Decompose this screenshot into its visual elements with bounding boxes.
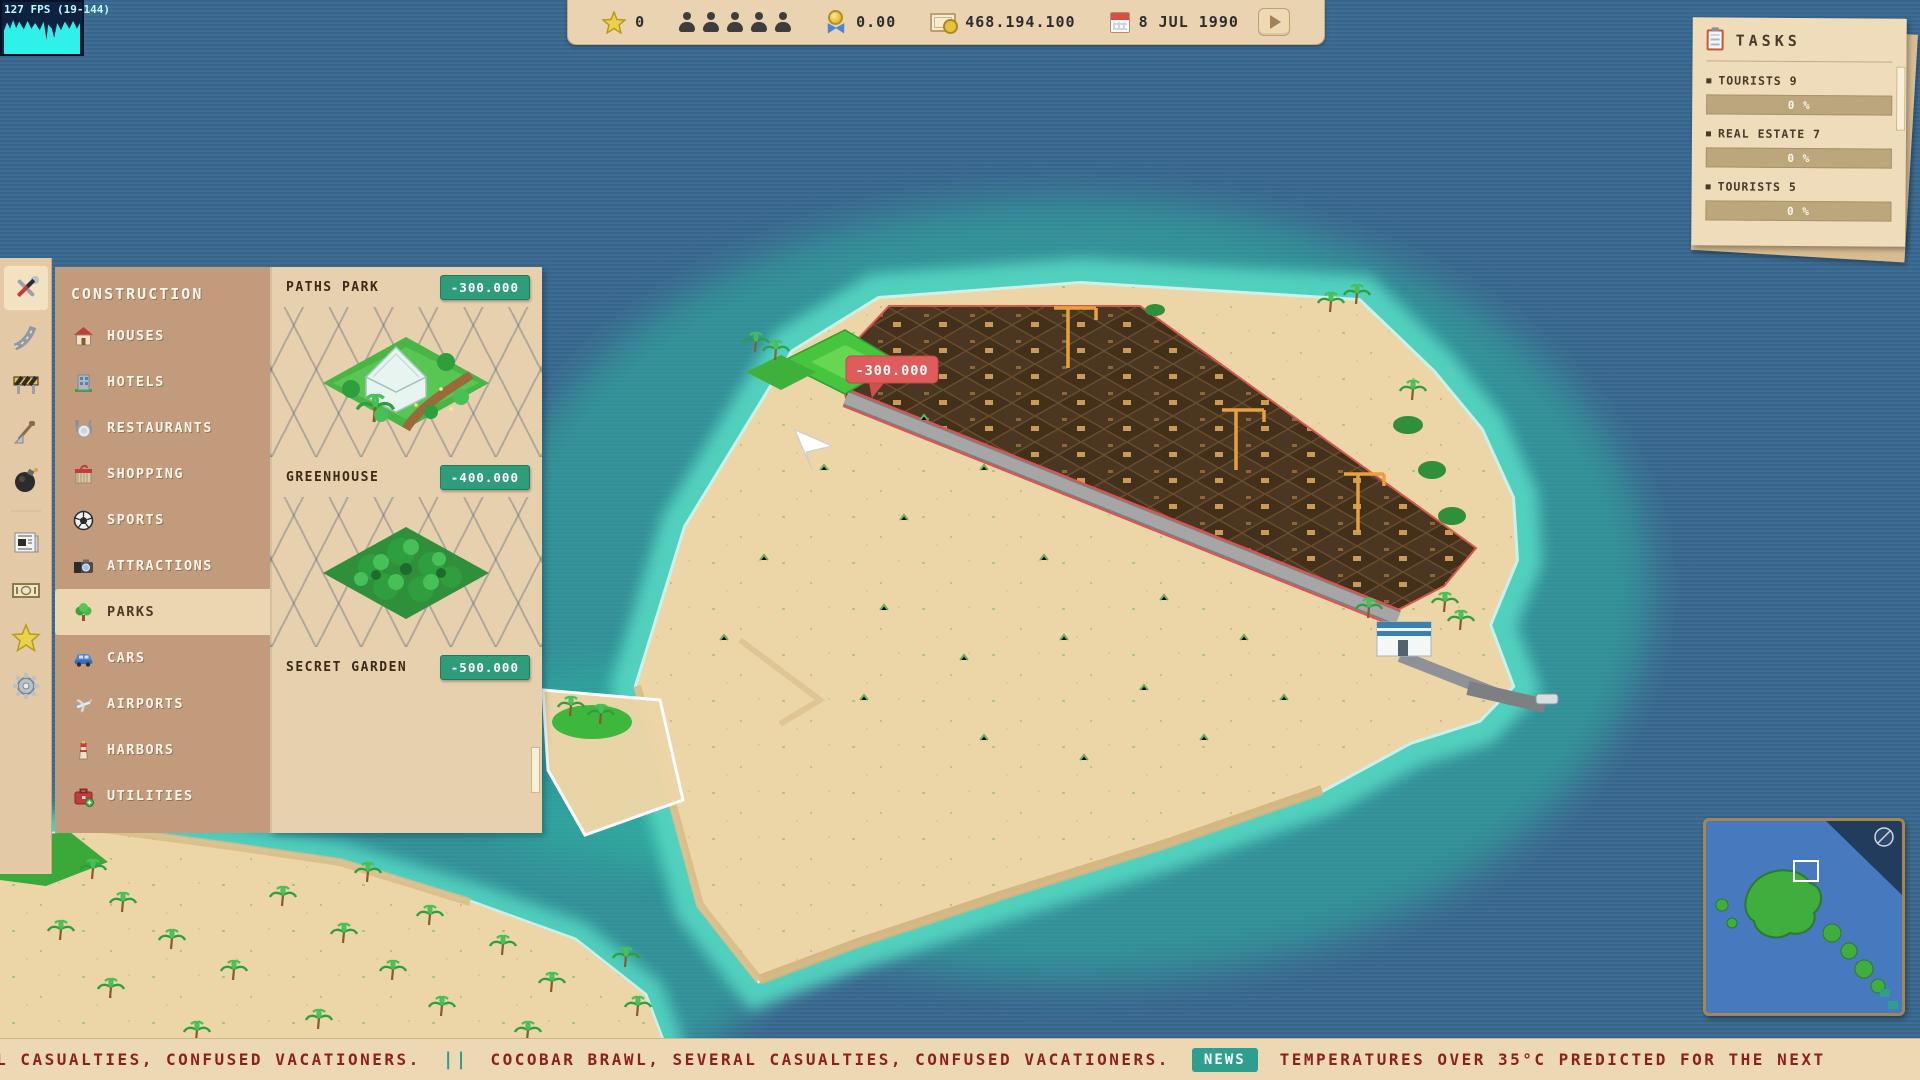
toolbar-finances-button[interactable] (4, 568, 48, 612)
menu-item-utilities[interactable]: UTILITIES (55, 773, 270, 819)
fps-overlay: 127 FPS (19-144) (0, 0, 84, 56)
catalog-preview-greenhouse[interactable] (270, 307, 542, 457)
money-group: 468.194.100 (930, 13, 1075, 32)
ticker-message: AL CASUALTIES, CONFUSED VACATIONERS. (0, 1050, 421, 1069)
play-speed-button[interactable] (1258, 8, 1290, 36)
tree-icon (73, 602, 94, 623)
medal-icon (825, 10, 847, 34)
calendar-icon (1110, 12, 1130, 33)
menu-item-attractions[interactable]: ATTRACTIONS (55, 543, 270, 589)
task-item: TOURISTS 5 0 % (1705, 179, 1891, 221)
banknote-icon (11, 575, 41, 605)
person-icon (751, 12, 767, 32)
road-icon (11, 321, 41, 351)
toolbar-terrain-button[interactable] (4, 410, 48, 454)
briefcase-icon (73, 786, 94, 807)
minimap-zoom-out-icon[interactable] (1888, 1001, 1898, 1009)
svg-text:-300.000: -300.000 (855, 363, 928, 379)
ticker-separator: || (443, 1049, 469, 1070)
news-ticker: AL CASUALTIES, CONFUSED VACATIONERS. || … (0, 1038, 1920, 1080)
construction-menu-title: CONSTRUCTION (55, 267, 270, 313)
plane-icon (73, 694, 94, 715)
camera-icon (73, 556, 94, 577)
shovel-icon (11, 417, 41, 447)
date-group: 8 JUL 1990 (1110, 8, 1290, 36)
toolbar-news-button[interactable] (4, 520, 48, 564)
toolbar-divider (11, 510, 41, 512)
reputation-group: 0 (602, 11, 645, 34)
ticker-message: TEMPERATURES OVER 35°C PREDICTED FOR THE… (1280, 1050, 1826, 1069)
toolbar-disasters-button[interactable] (4, 458, 48, 502)
price-tag: -400.000 (440, 465, 530, 490)
task-progress-bar: 0 % (1706, 94, 1892, 115)
tasks-title: TASKS (1736, 31, 1801, 49)
construction-menu: CONSTRUCTION HOUSES HOTELS (55, 267, 270, 833)
toolbar-achievements-button[interactable] (4, 616, 48, 660)
task-item: TOURISTS 9 0 % (1706, 73, 1892, 115)
catalog-scrollbar[interactable] (531, 747, 540, 793)
toolbar-demolish-zone-button[interactable] (4, 362, 48, 406)
person-icon (775, 12, 791, 32)
menu-item-harbors[interactable]: HARBORS (55, 727, 270, 773)
hotel-icon (73, 372, 94, 393)
fps-graph (4, 18, 80, 54)
construction-tools-icon (11, 273, 41, 303)
date-value: 8 JUL 1990 (1139, 13, 1239, 31)
sports-icon (73, 510, 94, 531)
newspaper-icon (11, 527, 41, 557)
catalog-preview-secret-garden[interactable] (270, 497, 542, 647)
menu-item-parks[interactable]: PARKS (55, 589, 270, 635)
money-value: 468.194.100 (965, 13, 1075, 31)
game-screen: -300.000 (0, 0, 1920, 1080)
menu-item-restaurants[interactable]: RESTAURANTS (55, 405, 270, 451)
shopping-icon (73, 464, 94, 485)
barrier-icon (11, 369, 41, 399)
parks-catalog-panel: PATHS PARK -300.000 GREENHOUSE (270, 267, 542, 833)
catalog-item-paths-park[interactable]: PATHS PARK -300.000 (270, 267, 542, 307)
gear-icon (11, 671, 41, 701)
menu-item-hotels[interactable]: HOTELS (55, 359, 270, 405)
awards-value: 0.00 (856, 13, 896, 31)
person-icon (679, 12, 695, 32)
catalog-item-greenhouse[interactable]: GREENHOUSE -400.000 (270, 457, 542, 497)
toolbar-roads-button[interactable] (4, 314, 48, 358)
fps-label: 127 FPS (19-144) (2, 2, 82, 17)
star-icon (602, 11, 626, 34)
price-tag: -300.000 (440, 275, 530, 300)
catalog-item-secret-garden[interactable]: SECRET GARDEN -500.000 (270, 647, 542, 687)
car-icon (73, 648, 94, 669)
awards-group: 0.00 (825, 10, 896, 34)
minimap[interactable] (1703, 818, 1905, 1016)
toolbar-settings-button[interactable] (4, 664, 48, 708)
reputation-value: 0 (635, 13, 645, 31)
population-group (679, 12, 791, 32)
person-icon (727, 12, 743, 32)
bomb-icon (11, 465, 41, 495)
status-bar: 0 0.00 468.194.100 8 JUL 1990 (567, 0, 1325, 45)
tasks-scrollbar[interactable] (1896, 67, 1905, 131)
clipboard-icon (1707, 29, 1724, 50)
minimap-zoom-in-icon[interactable] (1880, 989, 1890, 997)
menu-item-sports[interactable]: SPORTS (55, 497, 270, 543)
main-toolbar (0, 258, 52, 874)
star-icon (11, 623, 41, 653)
task-progress-bar: 0 % (1706, 147, 1892, 168)
house-icon (73, 326, 94, 347)
menu-item-houses[interactable]: HOUSES (55, 313, 270, 359)
toolbar-construction-button[interactable] (4, 266, 48, 310)
tasks-panel: TASKS TOURISTS 9 0 % REAL ESTATE 7 0 % T… (1691, 17, 1907, 246)
news-badge: NEWS (1192, 1048, 1258, 1072)
menu-item-shopping[interactable]: SHOPPING (55, 451, 270, 497)
task-progress-bar: 0 % (1705, 200, 1891, 221)
price-tag: -500.000 (440, 655, 530, 680)
person-icon (703, 12, 719, 32)
greenhouse-preview-art (311, 317, 501, 447)
menu-item-cars[interactable]: CARS (55, 635, 270, 681)
secret-garden-preview-art (311, 507, 501, 637)
money-icon (930, 13, 956, 32)
lighthouse-icon (73, 740, 94, 761)
ticker-message: COCOBAR BRAWL, SEVERAL CASUALTIES, CONFU… (490, 1050, 1169, 1069)
task-item: REAL ESTATE 7 0 % (1706, 126, 1892, 168)
restaurant-icon (73, 418, 94, 439)
menu-item-airports[interactable]: AIRPORTS (55, 681, 270, 727)
